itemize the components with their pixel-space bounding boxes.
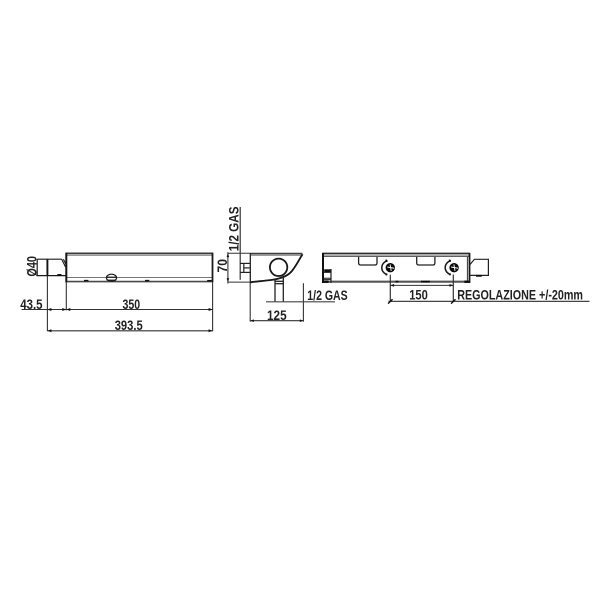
svg-text:150: 150 [409,286,428,302]
svg-text:125: 125 [267,307,287,323]
svg-text:REGOLAZIONE +/-20mm: REGOLAZIONE +/-20mm [457,286,583,302]
svg-text:1/2 GAS: 1/2 GAS [226,207,242,252]
svg-text:70: 70 [214,259,230,273]
svg-text:393.5: 393.5 [115,317,143,333]
svg-text:350: 350 [123,296,141,312]
svg-text:1/2 GAS: 1/2 GAS [307,287,347,303]
svg-text:Ø40: Ø40 [23,256,39,277]
svg-text:43.5: 43.5 [20,296,42,312]
